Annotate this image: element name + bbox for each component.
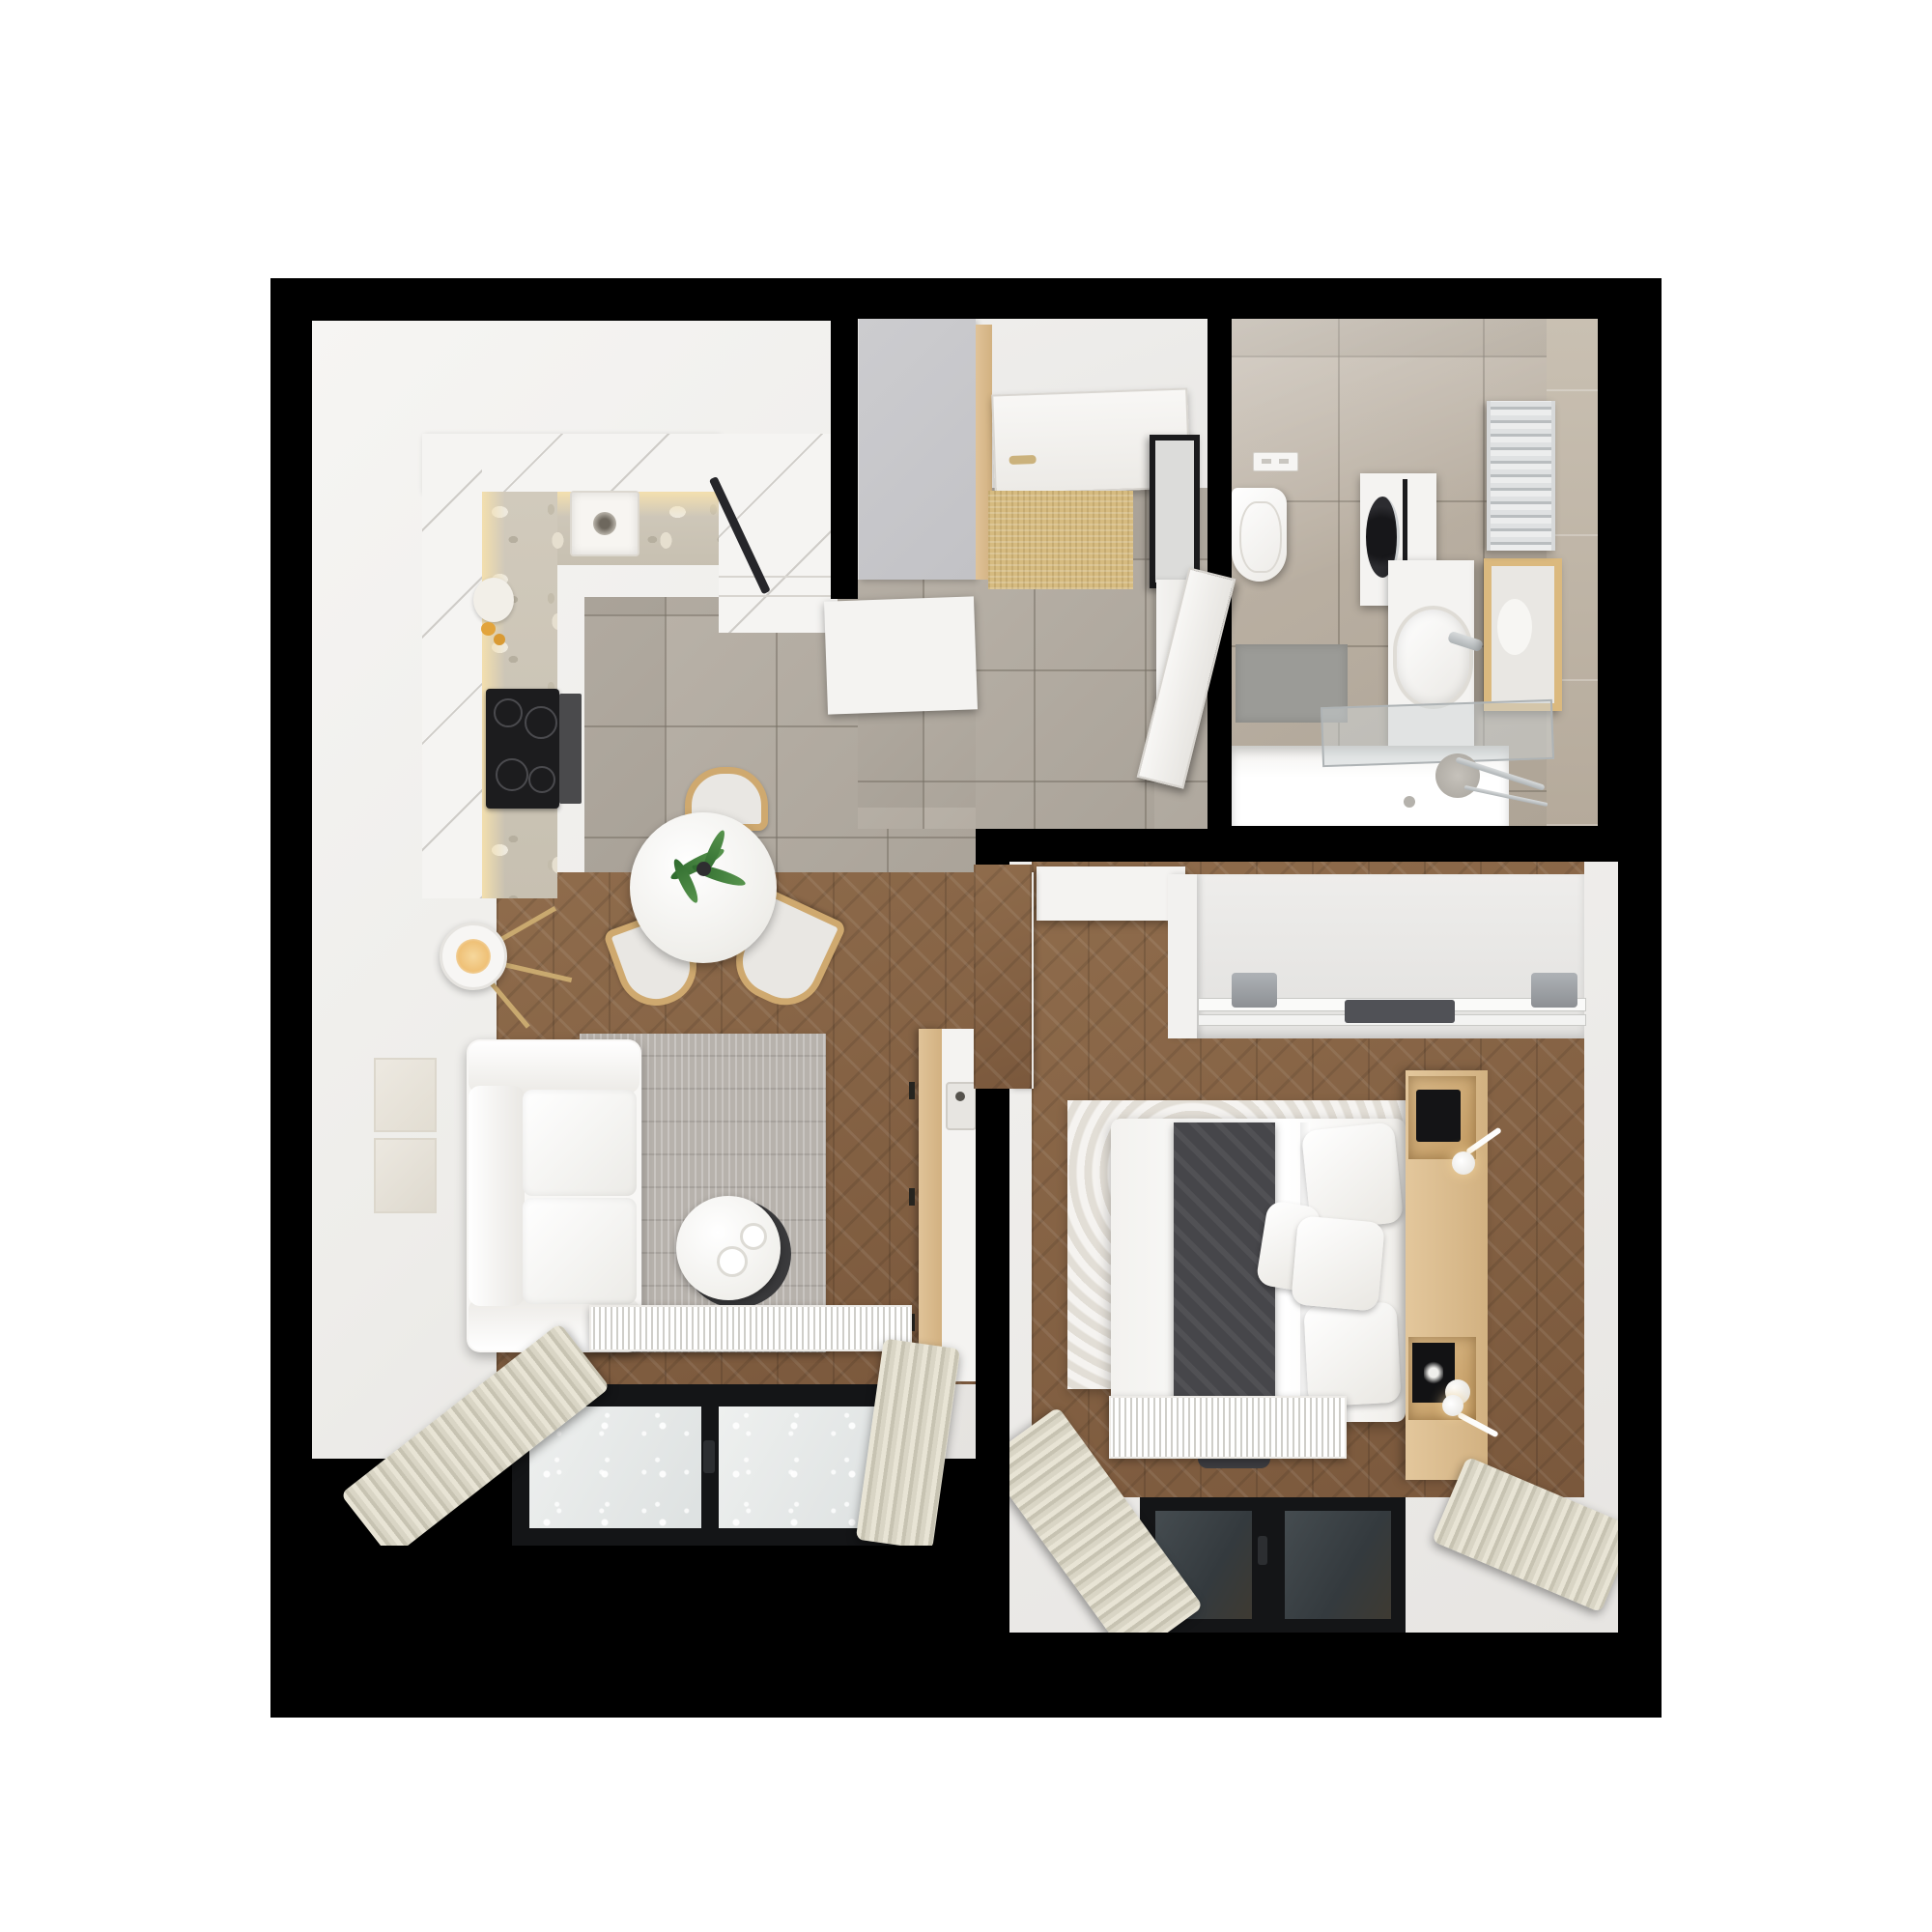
mirror-reflection-sink (1497, 599, 1532, 655)
kitchen-upper-cabinets-west (422, 434, 482, 898)
wall-art-frame-2 (374, 1138, 437, 1213)
flush-button (1262, 459, 1271, 464)
entry-doormat (988, 491, 1133, 589)
reading-lamp-top (1452, 1151, 1475, 1175)
bedroom-dresser (1037, 867, 1185, 921)
floor-plan-canvas (0, 0, 1932, 1932)
kitchen-tall-cabinet-seam2 (719, 595, 838, 597)
wall-stub-kitchen-hallway (831, 278, 858, 599)
floor-cable-mark-1 (909, 1082, 915, 1099)
flush-button-2 (1279, 459, 1289, 464)
wardrobe-niche (1168, 874, 1584, 1038)
tv-sideboard-wood-edge (919, 1029, 942, 1381)
living-radiator (589, 1305, 912, 1351)
coffee-table (676, 1196, 781, 1300)
wardrobe-bracket-left (1232, 973, 1277, 1008)
pillow-large-2 (1303, 1302, 1401, 1407)
toilet-flush-plate (1253, 452, 1298, 471)
room-bathroom (1232, 319, 1598, 826)
kitchen-sink (570, 491, 639, 556)
bedroom-radiator (1109, 1396, 1347, 1459)
room-bedroom (1009, 862, 1618, 1633)
art-card-motif (1424, 1360, 1443, 1385)
reading-lamp-bottom (1442, 1395, 1463, 1416)
sink-drain (593, 512, 616, 535)
induction-cooktop (486, 689, 559, 809)
clock-radio (1416, 1090, 1461, 1142)
tv-remote (946, 1082, 976, 1130)
lemon-1 (481, 622, 496, 636)
plant-pot (696, 862, 711, 876)
hallway-wardrobe-panel (859, 319, 976, 580)
hall-storage-unit (824, 596, 978, 714)
bedroom-curtain-right (1432, 1457, 1618, 1613)
toilet (1232, 488, 1287, 582)
wall-art-frame-1 (374, 1058, 437, 1132)
wardrobe-bracket-right (1531, 973, 1577, 1008)
floor-lamp-bulb-glow (456, 939, 491, 974)
burner-3 (496, 758, 528, 791)
burner-1 (494, 698, 523, 727)
entry-door-handle (1009, 455, 1036, 465)
wardrobe-side-panel (1168, 874, 1197, 1038)
pillow-small-2 (1291, 1215, 1385, 1311)
sofa-backrest (469, 1086, 525, 1306)
coffee-cup-2 (740, 1223, 767, 1250)
kitchen-tall-cabinet-seam (719, 576, 838, 578)
floor-cable-mark-2 (909, 1188, 915, 1206)
burner-4 (528, 766, 555, 793)
tv-remote-button (955, 1092, 965, 1101)
toilet-seat-line (1239, 501, 1282, 573)
breakfast-plate (473, 578, 514, 622)
bedroom-window-handle (1258, 1536, 1267, 1565)
vanity-sink (1393, 606, 1473, 709)
bathtub-drain (1404, 796, 1415, 808)
towel-radiator (1487, 401, 1555, 551)
bedroom-doorway-threshold (974, 865, 1032, 1089)
burner-2 (525, 706, 557, 739)
oven-edge (559, 694, 582, 804)
lemon-2 (494, 634, 505, 645)
coffee-cup-1 (717, 1246, 748, 1277)
bathroom-mirror (1484, 558, 1562, 711)
sofa-cushion-2 (523, 1198, 637, 1304)
floor-lamp-shade (440, 923, 507, 990)
sofa-cushion-1 (523, 1090, 637, 1196)
dining-table (630, 812, 777, 963)
living-window-handle (703, 1440, 715, 1473)
wardrobe-rail-track-dark (1345, 1000, 1455, 1023)
hallway-mirror (1150, 435, 1200, 588)
nightstand-shelf-top (1408, 1076, 1476, 1159)
bath-glass-screen (1321, 699, 1554, 767)
bedroom-window-pane-right (1285, 1511, 1391, 1619)
